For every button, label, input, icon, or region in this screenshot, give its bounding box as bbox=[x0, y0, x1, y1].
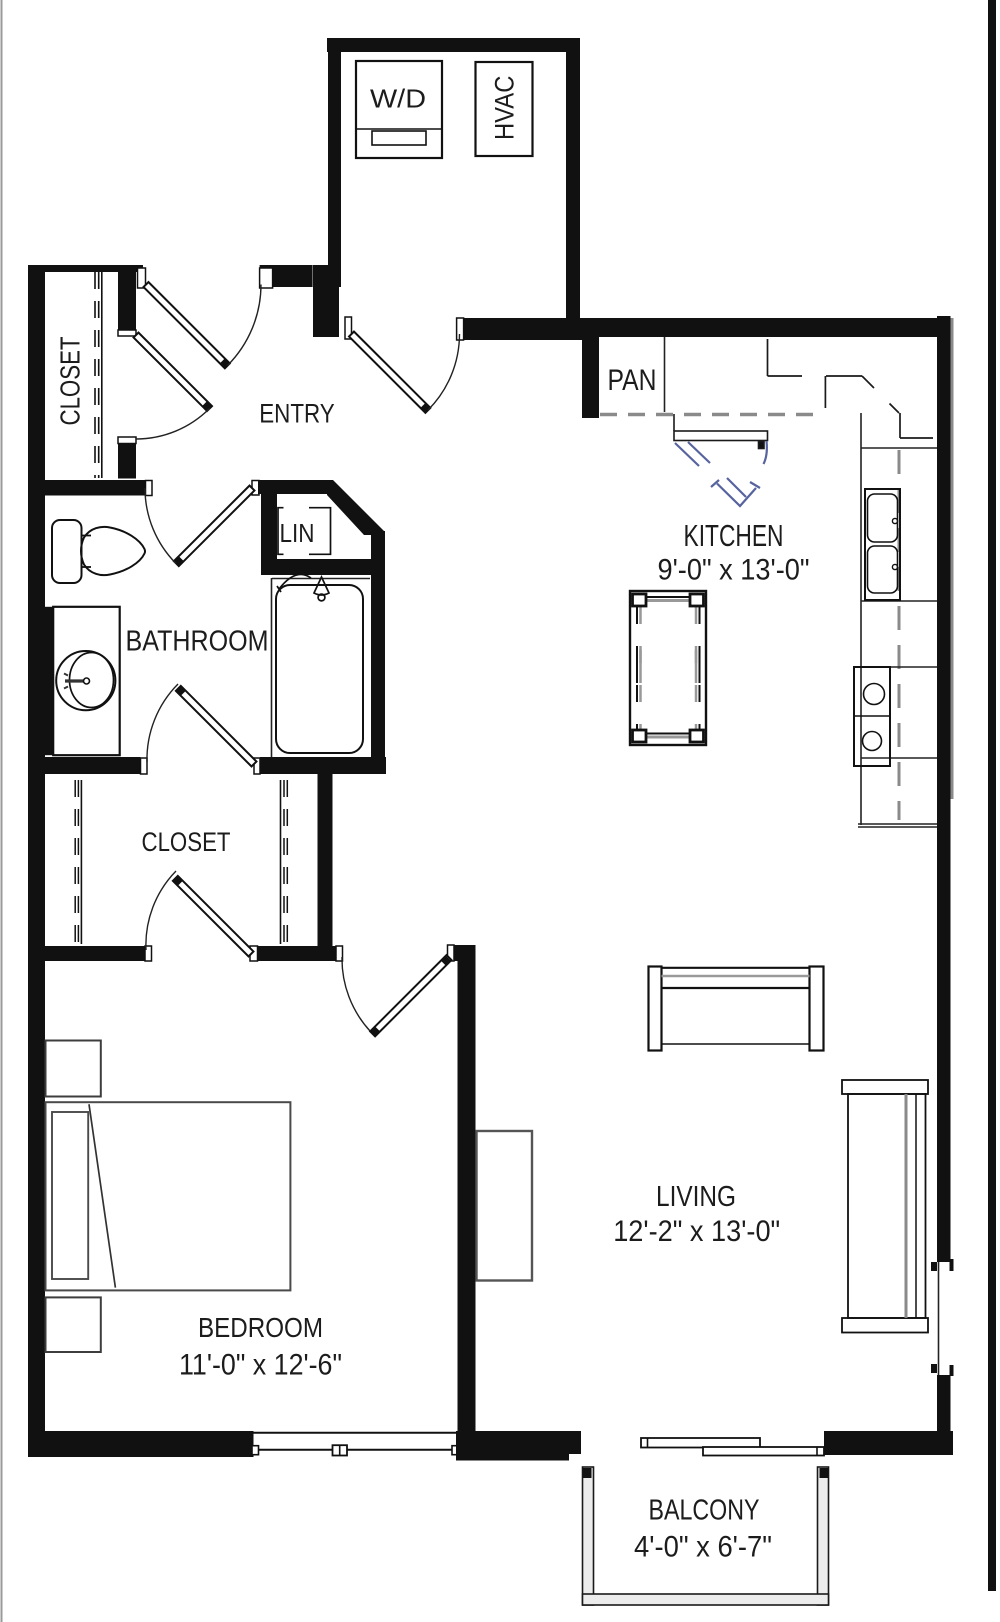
svg-text:BALCONY: BALCONY bbox=[649, 1495, 760, 1527]
svg-text:9'-0" x 13'-0": 9'-0" x 13'-0" bbox=[658, 554, 810, 587]
svg-text:11'-0" x 12'-6": 11'-0" x 12'-6" bbox=[179, 1349, 342, 1382]
svg-text:BEDROOM: BEDROOM bbox=[198, 1312, 323, 1343]
svg-text:KITCHEN: KITCHEN bbox=[684, 518, 784, 553]
svg-text:W/D: W/D bbox=[370, 84, 426, 114]
svg-text:LIN: LIN bbox=[280, 518, 315, 548]
svg-text:12'-2" x 13'-0": 12'-2" x 13'-0" bbox=[613, 1215, 780, 1248]
svg-text:HVAC: HVAC bbox=[490, 76, 520, 141]
svg-text:LIVING: LIVING bbox=[656, 1181, 736, 1213]
svg-text:BATHROOM: BATHROOM bbox=[126, 626, 269, 658]
svg-text:ENTRY: ENTRY bbox=[259, 399, 335, 429]
svg-text:CLOSET: CLOSET bbox=[142, 827, 231, 857]
svg-text:4'-0" x 6'-7": 4'-0" x 6'-7" bbox=[634, 1531, 772, 1564]
svg-text:CLOSET: CLOSET bbox=[55, 336, 86, 425]
svg-text:PAN: PAN bbox=[608, 364, 657, 397]
